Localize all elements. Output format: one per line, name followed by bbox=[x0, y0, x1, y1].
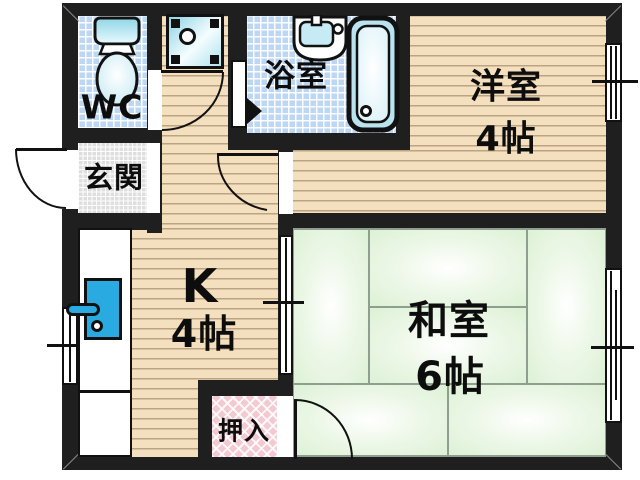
bathroom-door-arrow-icon bbox=[247, 98, 262, 124]
genkan-label: 玄関 bbox=[84, 164, 144, 193]
kitchen-door-opening bbox=[279, 152, 293, 214]
japanese-room-label: 和室 bbox=[408, 301, 490, 341]
kitchen-drain-icon bbox=[91, 320, 103, 332]
western-room-floor-ext bbox=[292, 150, 607, 215]
kitchen-faucet-icon bbox=[66, 303, 100, 316]
western-room-size: 4帖 bbox=[475, 123, 536, 158]
closet-label: 押入 bbox=[218, 419, 270, 444]
genkan-passage-opening bbox=[147, 143, 160, 213]
washing-machine-pan-icon bbox=[166, 14, 224, 69]
tatami-mat bbox=[293, 229, 369, 384]
floor-plan: WC 玄関 浴室 洋室 4帖 K 4帖 和室 6帖 押入 bbox=[0, 0, 640, 480]
kitchen-counter bbox=[78, 228, 132, 457]
japanese-window-tick bbox=[591, 346, 634, 349]
bath-sink-icon bbox=[291, 15, 349, 62]
wc-door-arc bbox=[159, 70, 227, 134]
japanese-room-size: 6帖 bbox=[415, 357, 485, 397]
closet-opening bbox=[277, 396, 293, 457]
wall-outer-left bbox=[62, 3, 78, 470]
closet-door-arc bbox=[293, 397, 355, 461]
western-window-tick bbox=[592, 80, 638, 83]
bathtub-icon bbox=[346, 15, 400, 133]
kitchen-counter-divider bbox=[78, 390, 132, 393]
wall-closet-top bbox=[198, 380, 293, 396]
tatami-mat bbox=[369, 229, 527, 307]
japanese-window-rail bbox=[615, 290, 617, 400]
western-room-label: 洋室 bbox=[470, 71, 542, 106]
tatami-mat bbox=[527, 229, 606, 384]
kitchen-japanese-window-rail bbox=[285, 238, 287, 372]
bathroom-label: 浴室 bbox=[264, 62, 328, 93]
kitchen-door-arc bbox=[215, 153, 281, 215]
kitchen-japanese-window-tick bbox=[263, 301, 304, 304]
wall-japanese-top bbox=[291, 213, 606, 228]
bathroom-door bbox=[231, 60, 247, 128]
wall-closet-left bbox=[198, 380, 212, 457]
wall-bathroom-bottom bbox=[228, 133, 410, 150]
wc-label: WC bbox=[81, 91, 144, 124]
entrance-door-arc bbox=[14, 147, 70, 211]
kitchen-size: 4帖 bbox=[171, 315, 237, 353]
kitchen-label: K bbox=[182, 263, 219, 309]
